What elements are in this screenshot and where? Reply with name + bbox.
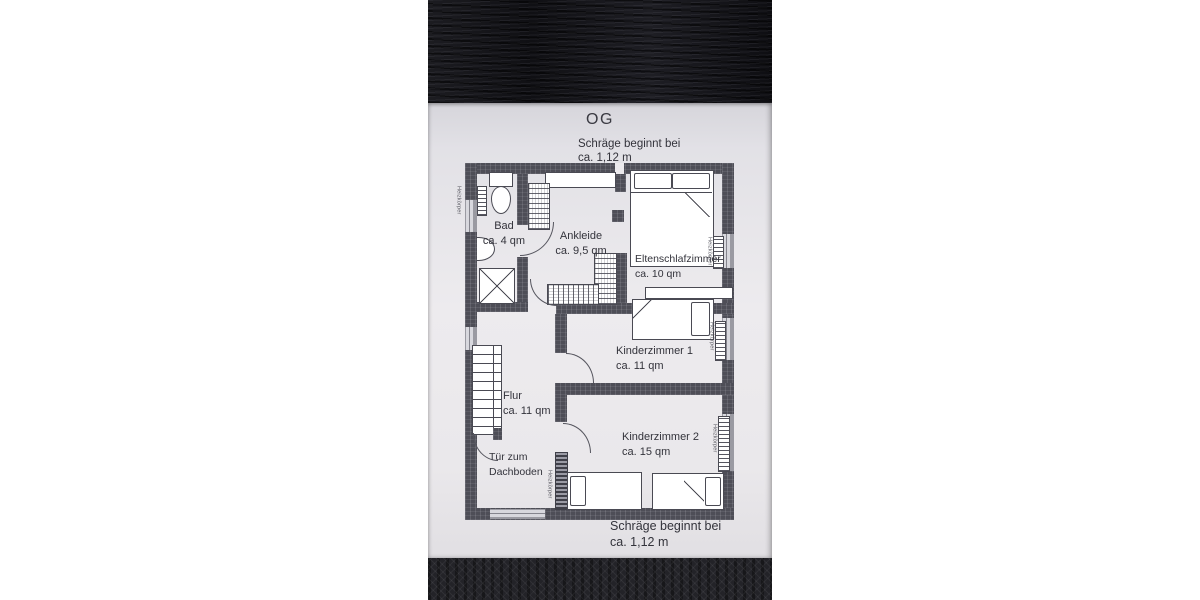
radiator-kinderzimmer2	[718, 416, 730, 472]
sideboard	[645, 287, 733, 299]
room-name-bad: Bad	[477, 219, 531, 234]
blanket-fold	[684, 193, 711, 217]
radiator-kinderzimmer1	[715, 321, 726, 361]
floorplan-photo: OG Schräge beginnt bei ca. 1,12 m Schräg…	[428, 0, 772, 600]
wall-ankleide-eltern-upper	[615, 174, 626, 192]
shelf	[545, 172, 616, 188]
room-label-bad: Bad ca. 4 qm	[477, 219, 531, 250]
toilet-tank	[489, 172, 513, 187]
floorplan-drawing: OG Schräge beginnt bei ca. 1,12 m Schräg…	[428, 0, 772, 600]
room-area-kinderzimmer1: ca. 11 qm	[616, 359, 693, 374]
attic-door-line2: Dachboden	[489, 465, 543, 480]
staircase-stringer	[493, 345, 500, 433]
room-area-kinderzimmer2: ca. 15 qm	[622, 445, 699, 460]
slope-note-bottom-line2: ca. 1,12 m	[610, 535, 721, 551]
window-bad	[465, 200, 477, 232]
wall-pillar	[612, 210, 624, 222]
wall-bad-ankleide-lower	[517, 257, 528, 303]
wall-kinderzimmer1-kinderzimmer2	[555, 383, 734, 395]
fold-kinderzimmer1	[632, 299, 652, 319]
radiator-label-kinderzimmer2: Heizkörper	[711, 424, 717, 452]
room-area-eltern: ca. 10 qm	[635, 267, 721, 282]
window-bottom	[490, 509, 545, 519]
wall-top-notch	[615, 163, 624, 174]
attic-door-label: Tür zum Dachboden	[489, 450, 543, 479]
shower	[479, 268, 515, 304]
radiator-label-eltern: Heizkörper	[706, 237, 712, 267]
pillow2-kinderzimmer2	[705, 477, 721, 506]
wall-flur-kinderzimmer1	[555, 314, 567, 353]
attic-door-line1: Tür zum	[489, 450, 543, 465]
radiator-label-bad: Heizkörper	[455, 186, 461, 216]
room-label-flur: Flur ca. 11 qm	[503, 389, 551, 420]
room-name-ankleide: Ankleide	[552, 229, 610, 244]
room-label-ankleide: Ankleide ca. 9,5 qm	[552, 229, 610, 260]
slope-note-top-line1: Schräge beginnt bei	[578, 137, 680, 151]
wall-flur-kinderzimmer2-upper	[555, 395, 567, 422]
door-arc-kinderzimmer2	[563, 423, 591, 453]
page-canvas: OG Schräge beginnt bei ca. 1,12 m Schräg…	[0, 0, 1200, 600]
door-arc-kinderzimmer1	[566, 353, 594, 383]
radiator-bad	[477, 186, 487, 216]
slope-note-top: Schräge beginnt bei ca. 1,12 m	[578, 137, 680, 165]
slope-note-bottom-line1: Schräge beginnt bei	[610, 519, 721, 535]
room-area-bad: ca. 4 qm	[477, 234, 531, 249]
pillow-right	[672, 173, 710, 189]
radiator-label-flur: Heizkörper	[546, 470, 552, 502]
fold-kinderzimmer2	[684, 478, 704, 504]
pillow1-kinderzimmer2	[570, 476, 586, 506]
toilet-bowl	[491, 186, 511, 214]
room-name-flur: Flur	[503, 389, 551, 404]
room-label-kinderzimmer2: Kinderzimmer 2 ca. 15 qm	[622, 430, 699, 461]
slope-note-bottom: Schräge beginnt bei ca. 1,12 m	[610, 519, 721, 550]
room-name-kinderzimmer2: Kinderzimmer 2	[622, 430, 699, 445]
wall-bad-ankleide-upper	[517, 174, 528, 225]
door-arc-ankleide	[530, 279, 557, 306]
room-area-flur: ca. 11 qm	[503, 404, 551, 419]
radiator-label-kinderzimmer1: Heizkörper	[708, 322, 714, 356]
room-area-ankleide: ca. 9,5 qm	[552, 244, 610, 259]
pillow-left	[634, 173, 672, 189]
room-name-kinderzimmer1: Kinderzimmer 1	[616, 344, 693, 359]
room-label-kinderzimmer1: Kinderzimmer 1 ca. 11 qm	[616, 344, 693, 375]
floor-title: OG	[428, 111, 772, 129]
